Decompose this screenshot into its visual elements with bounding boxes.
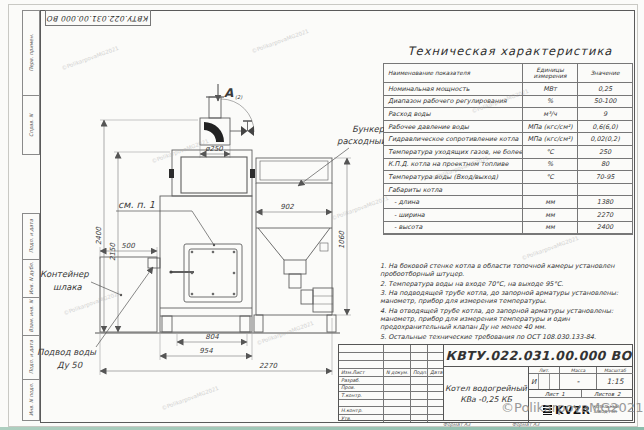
spec-unit: мм [523,222,578,235]
dim-bunker-height: 1060 [338,231,346,249]
signature-row: Т.контр. [339,392,443,400]
lit-header-row: Лит. Масса Масштаб [529,367,633,374]
spec-value: 0,02(0,2) [578,133,632,146]
spec-value: 50-100 [578,96,632,109]
tech-table-header: Наименование показателя [384,64,523,83]
lit-value: И [529,374,539,389]
spec-unit [523,184,578,197]
water-inlet-label-line1: Подвод воды [37,347,97,357]
col-header: Подп. [411,369,428,376]
tech-table-header: Значение [578,64,632,83]
document-number: КВТУ.022.031.00.000 ВО [444,345,633,367]
tech-table-title: Техническая характеристика [395,44,625,58]
mass-label: Масса [560,367,597,373]
sheet-cell: Лист 1 [529,390,582,397]
col-header: Дата [428,369,443,376]
spec-unit: °С [523,146,578,159]
sheets-value: 2 [617,391,620,397]
spec-unit: МПа (кгс/см²) [523,133,578,146]
fuel-bunker [254,158,336,332]
spec-name: Температура воды (Вход/выход) [384,171,523,184]
spec-value [578,184,632,197]
note-line: 3. На подводящей трубе котла, до запорно… [380,289,632,306]
signature-role: Утв. [339,415,384,423]
sheet-value: 1 [561,391,564,397]
spec-value: 9 [578,108,632,121]
copyright-signature: ©PolikarpovaMG2021 [501,400,643,415]
product-name-line1: Котел водогрейный [445,384,527,395]
spec-name: Диапазон рабочего регулирования [384,96,523,109]
chimney [200,97,254,145]
spec-name: Габариты котла [384,184,523,197]
spec-value: 0,6(6,0) [578,121,632,134]
sheet-row: Лист 1 Листов 2 [529,390,633,398]
boiler-body [148,150,255,332]
sheets-cell: Листов 2 [582,390,634,397]
note-line: 1. На боковой стенке котла в области топ… [380,262,632,279]
signature-row: Утв. [339,415,443,423]
spec-value: 80 [578,159,632,172]
spec-value: 250 [578,146,632,159]
spec-value: 1380 [578,196,632,209]
lit-cells: И [529,374,560,389]
spec-unit: °С [523,171,578,184]
bunker-label-line2: расходный [337,136,384,146]
spec-unit: МВт [523,83,578,96]
spec-unit: мм [523,209,578,222]
signature-row: Н.контр. [339,407,443,415]
scale-value: 1:15 [597,374,633,389]
spec-name: Номинальная мощность [384,83,523,96]
lit-label: Лит. [529,367,560,373]
container-label-line1: Контейнер [40,269,89,279]
spec-value: 2400 [578,222,632,235]
margin-label: Инв. N подл. [28,383,34,416]
sheet-background: Перв. примен. Справ. N Подп. и дата Инв.… [0,0,644,430]
spec-unit: мм [523,196,578,209]
sheets-label: Листов [594,391,614,397]
margin-label: Перв. примен. [28,34,34,72]
spec-value: 70-95 [578,171,632,184]
spec-value: 0,25 [578,83,632,96]
tech-table-header: Единицы измерения [523,64,578,83]
signature-role [339,400,384,407]
spec-unit: % [523,96,578,109]
spec-name: - ширина [384,209,523,222]
technical-notes: 1. На боковой стенке котла в области топ… [380,262,632,342]
corner-stamp: КВТУ.022.031.00.000 ВО [45,10,151,26]
lit-values-row: И - 1:15 [529,374,633,390]
spec-name: Расход воды [384,108,523,121]
dim-container-width: 500 [121,242,135,250]
spec-unit: % [523,159,578,172]
view-a-sub: (2) [235,94,243,100]
view-a-label: А [224,86,234,100]
dim-chimney-diameter: ø250 [205,145,223,153]
boiler-drawing-sheet: { "watermark": {"signature": "©Polikarpo… [0,0,644,430]
corner-stamp-number: КВТУ.022.031.00.000 ВО [47,14,149,23]
dim-height-body: 2150 [109,243,117,261]
spec-unit: м³/ч [523,108,578,121]
water-inlet-label-line2: Ду 50 [57,360,84,370]
spec-name: - высота [384,222,523,235]
signature-role: Т.контр. [339,392,384,399]
spec-name: - длина [384,196,523,209]
spec-value: 2270 [578,209,632,222]
note-line: 5. Остальные технические требования по О… [380,333,632,341]
tech-table: Наименование показателя Единицы измерени… [383,63,633,235]
margin-cell: Инв. N подл. [23,380,39,420]
see-note-label: см. п. 1 [118,199,155,210]
dim-bunker-width: 902 [280,203,294,211]
mass-value: - [560,374,597,389]
signature-row [339,400,443,408]
view-a-marker: А (2) [218,84,243,101]
container-label-line2: шлака [53,282,83,292]
spec-name: Рабочее давление воды [384,121,523,134]
signature-role: Н.контр. [339,407,384,414]
note-line: 2. Температура воды на входе 70°С, на вы… [380,280,632,288]
furnace-door [169,244,242,302]
note-line: 4. На отводящей трубе котла, до запорной… [380,307,632,332]
sheet-label: Лист [545,391,559,397]
dim-firebox-width: 804 [205,333,219,341]
bunker-label-line1: Бункер [352,124,384,134]
dim-boiler-width: 954 [199,347,213,355]
spec-name: Температура уходящих газов, не более [384,146,523,159]
dim-height-total: 2400 [95,227,103,245]
spec-name: К.П.Д. котла на проектном топливе [384,159,523,172]
col-header: N докум. [384,369,411,376]
boiler-assembly-drawing: А (2) [28,76,384,386]
spec-name: Гидравлическое сопротивление котла [384,133,523,146]
spec-unit: МПа (кгс/см²) [523,121,578,134]
scale-label: Масштаб [597,367,633,373]
dim-total-width: 2270 [259,362,277,370]
